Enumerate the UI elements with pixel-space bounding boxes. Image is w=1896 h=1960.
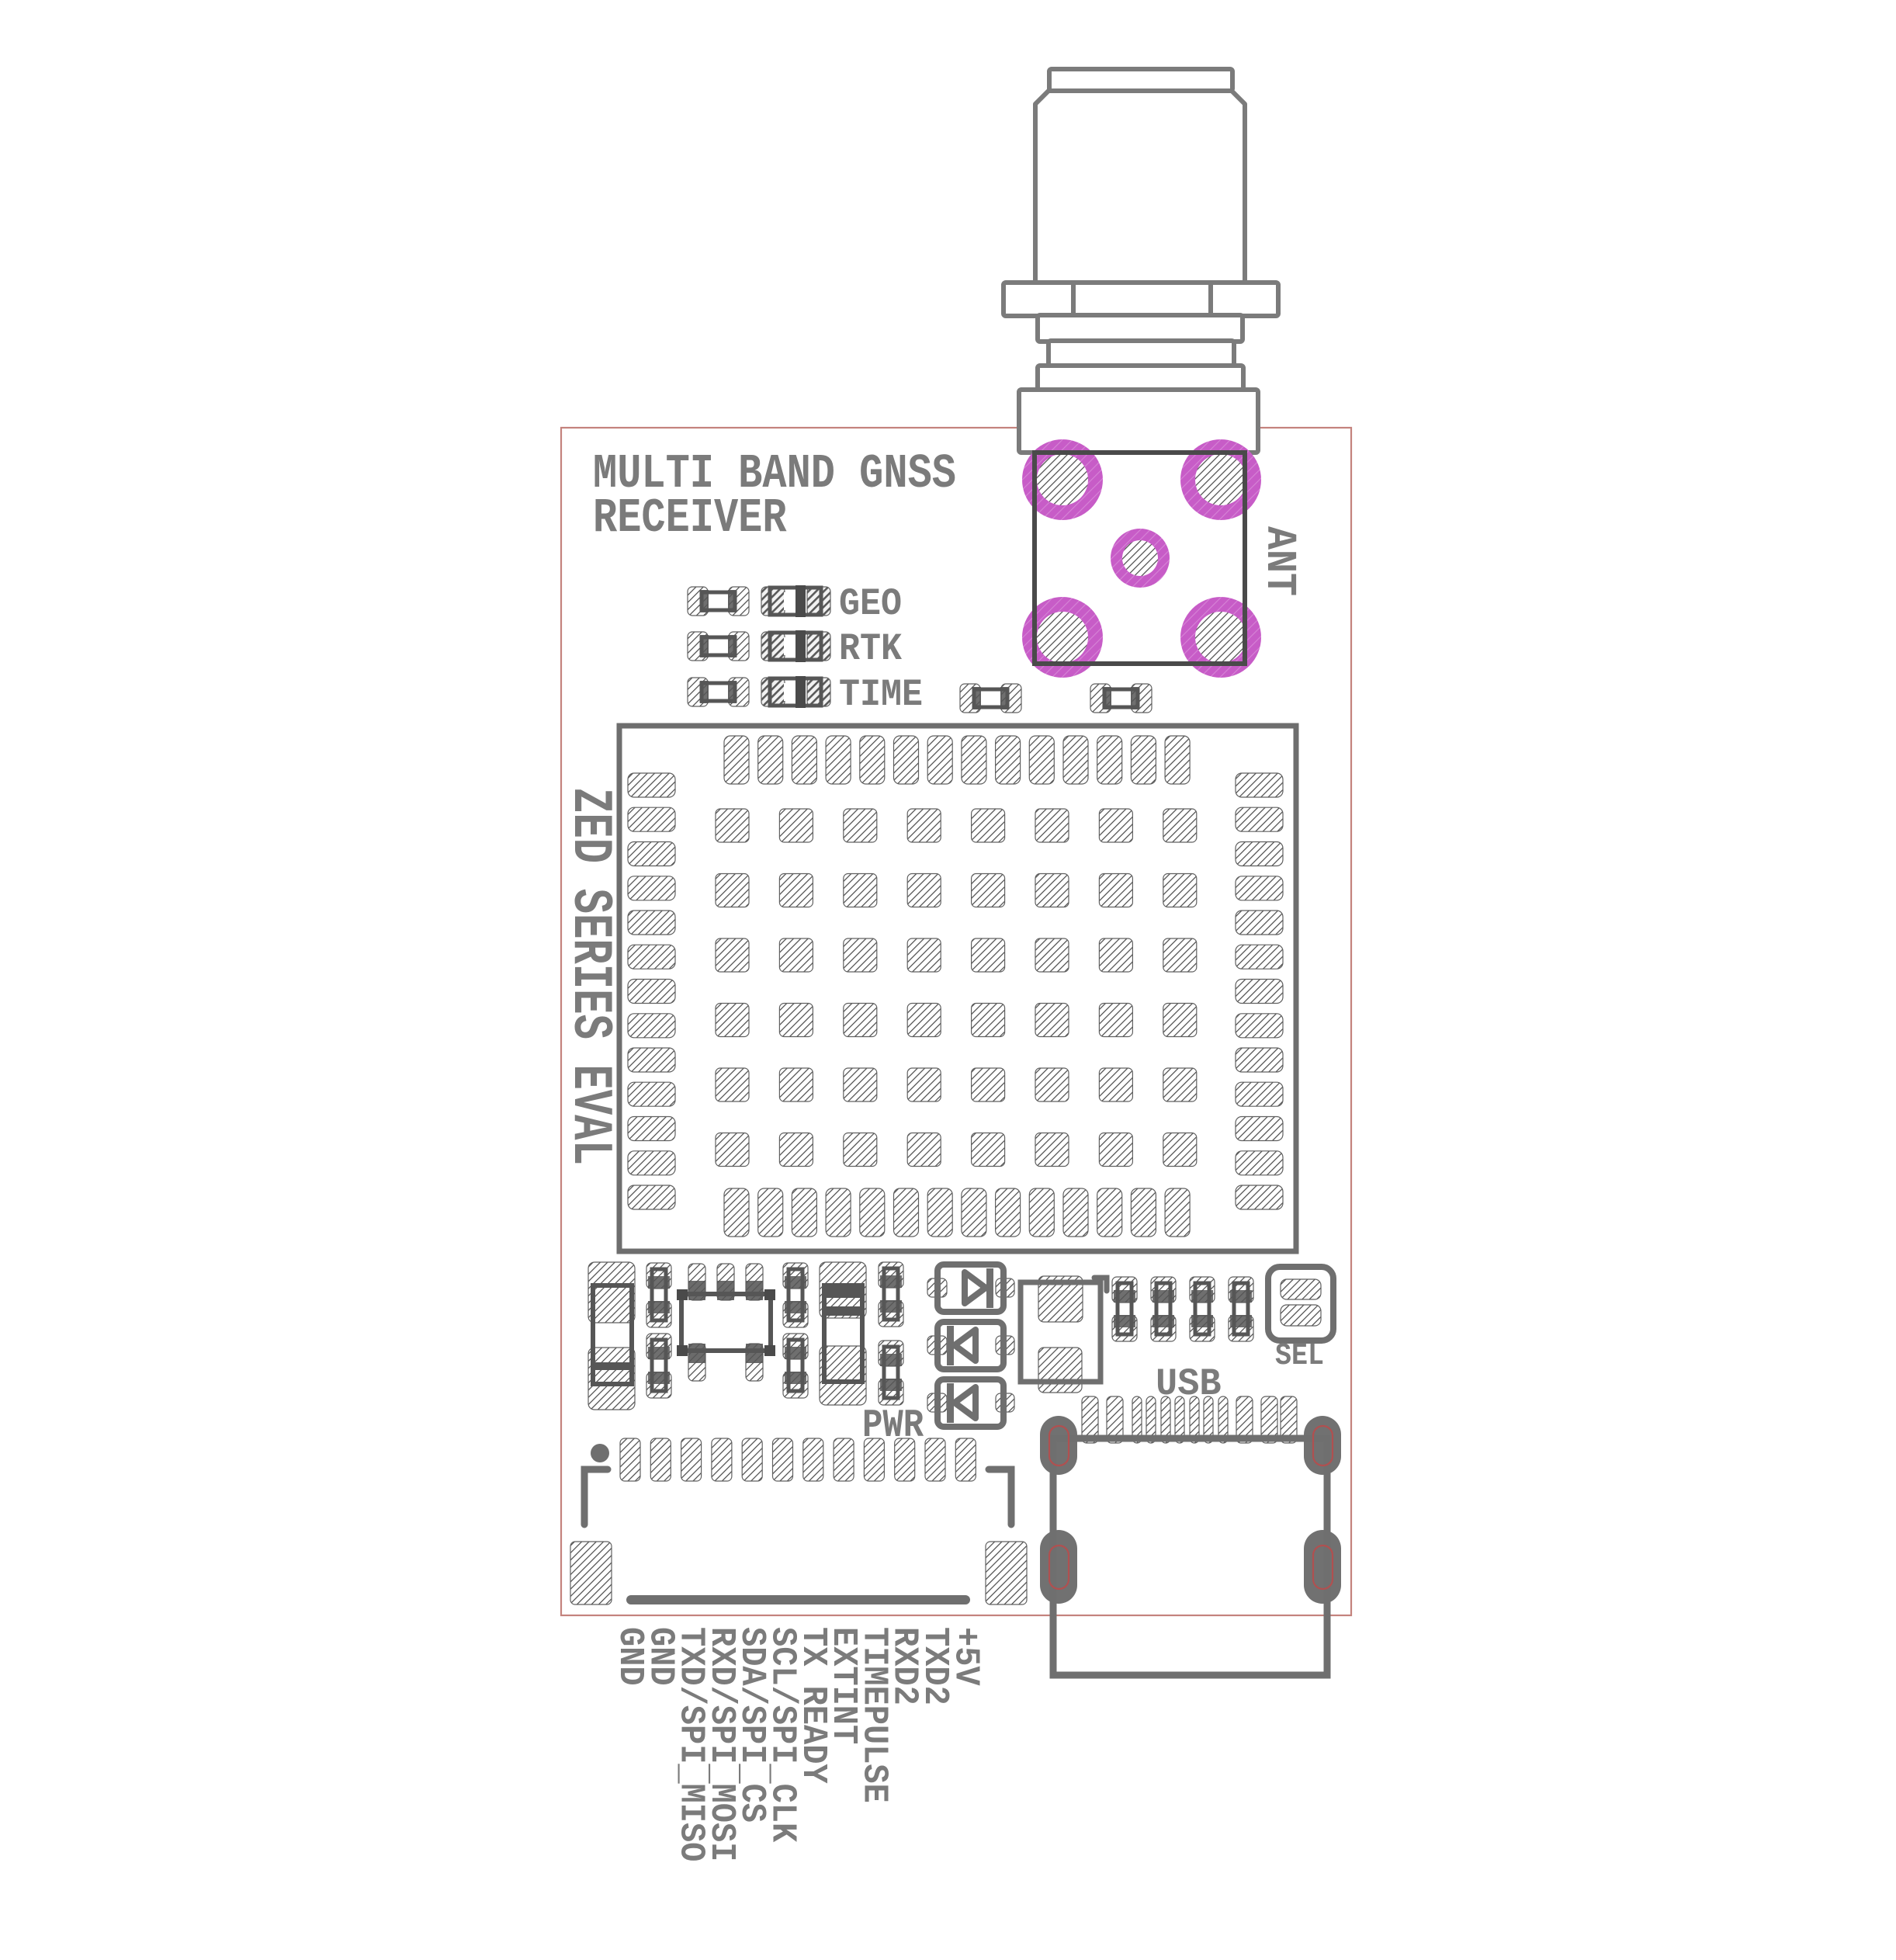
svg-text:GEO: GEO — [839, 583, 902, 626]
svg-text:RTK: RTK — [839, 628, 903, 671]
svg-text:ANT: ANT — [1255, 526, 1304, 596]
svg-text:SEL: SEL — [1275, 1339, 1324, 1374]
svg-text:RECEIVER: RECEIVER — [593, 491, 787, 546]
svg-text:+5V: +5V — [945, 1627, 985, 1686]
svg-text:TIME: TIME — [839, 674, 923, 716]
svg-text:ZED SERIES EVAL: ZED SERIES EVAL — [557, 788, 621, 1165]
